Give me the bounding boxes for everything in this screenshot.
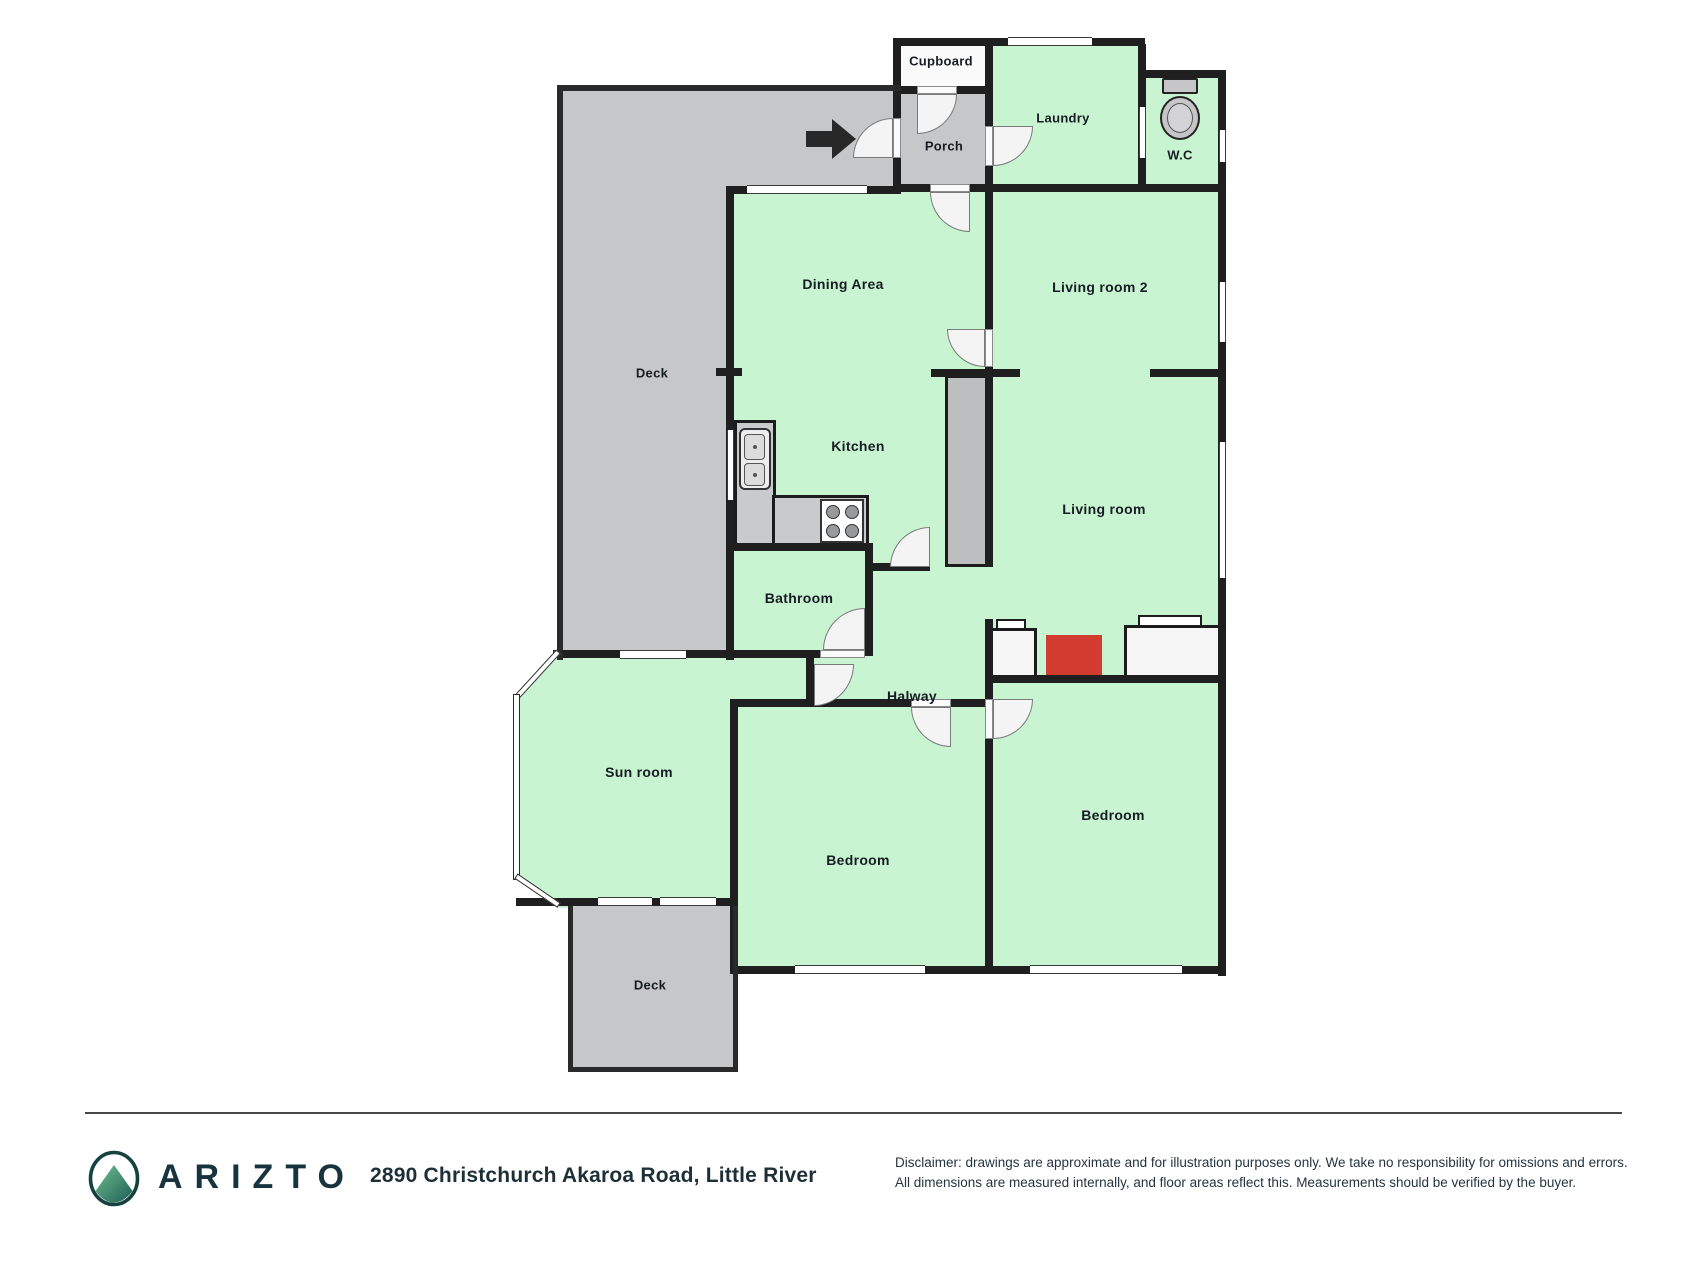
door-leaf — [820, 650, 865, 658]
wall — [726, 186, 734, 660]
window — [1139, 107, 1146, 158]
fireplace-cabinet-right-step — [1138, 615, 1202, 627]
door-leaf — [985, 126, 993, 166]
window — [1219, 130, 1226, 162]
room-label-cupboard: Cupboard — [909, 54, 973, 69]
wall — [970, 184, 1222, 192]
wall — [985, 365, 993, 567]
fireplace-cabinet-left — [988, 628, 1037, 679]
room-label-laundry: Laundry — [1036, 111, 1089, 126]
disclaimer-line-1: Disclaimer: drawings are approximate and… — [895, 1155, 1628, 1170]
room-label-living-room-2: Living room 2 — [1052, 279, 1148, 295]
property-address: 2890 Christchurch Akaroa Road, Little Ri… — [370, 1164, 817, 1188]
footer-divider — [85, 1112, 1622, 1114]
wall — [985, 38, 993, 126]
door-leaf — [930, 184, 970, 192]
door-leaf — [917, 86, 957, 94]
wall — [865, 543, 873, 656]
room-label-halway: Halway — [887, 688, 937, 704]
arizto-logo-icon — [88, 1150, 140, 1207]
window — [1030, 965, 1182, 974]
sink-basin-bottom — [744, 463, 765, 486]
disclaimer-text: Disclaimer: drawings are approximate and… — [895, 1153, 1650, 1192]
fireplace-cabinet-right — [1124, 625, 1222, 679]
window — [727, 430, 734, 500]
entrance-arrow-icon — [806, 131, 832, 147]
wall — [726, 543, 869, 551]
window — [620, 650, 686, 659]
window — [598, 897, 652, 906]
deck-wall — [568, 904, 573, 1072]
wall — [985, 739, 993, 974]
wall — [985, 619, 993, 679]
deck-wall — [557, 85, 563, 660]
room-label-deck-bottom: Deck — [634, 978, 666, 993]
room-label-kitchen: Kitchen — [831, 438, 884, 454]
stove-icon — [820, 499, 864, 543]
fireplace — [1046, 635, 1102, 679]
toilet-icon-bowl-inner — [1167, 103, 1193, 133]
wall — [893, 184, 930, 192]
fireplace-cabinet-left-step — [996, 619, 1026, 630]
wall — [1150, 369, 1226, 377]
chimney — [945, 375, 989, 567]
sink-icon — [739, 428, 771, 490]
window — [795, 965, 925, 974]
toilet-icon-tank — [1162, 78, 1198, 94]
room-halway-b — [734, 656, 989, 705]
room-label-bathroom: Bathroom — [765, 590, 834, 606]
window — [1219, 282, 1226, 342]
door-leaf — [893, 118, 901, 158]
entrance-arrow-icon-head — [832, 119, 856, 159]
door-leaf — [985, 699, 993, 739]
room-living-rooms — [989, 190, 1222, 679]
bay-window-wall — [513, 694, 520, 880]
window — [1219, 442, 1226, 578]
wall — [985, 675, 1222, 683]
room-sun-room — [516, 652, 738, 908]
window — [660, 897, 716, 906]
sink-basin-top — [744, 434, 765, 460]
wall — [931, 369, 1020, 377]
brand-name: ARIZTO — [158, 1158, 356, 1197]
wall — [716, 368, 742, 376]
deck-wall — [733, 904, 738, 1072]
room-label-wc: W.C — [1167, 148, 1192, 163]
deck-wall — [557, 85, 901, 91]
room-label-porch: Porch — [925, 139, 963, 154]
room-label-deck-top: Deck — [636, 366, 668, 381]
room-label-living-room: Living room — [1062, 501, 1145, 517]
window — [1008, 37, 1092, 46]
door-leaf — [985, 329, 993, 367]
room-label-bedroom-middle: Bedroom — [826, 852, 890, 868]
room-label-sun-room: Sun room — [605, 764, 673, 780]
floorplan-page: Cupboard Porch Laundry W.C Deck Dining A… — [0, 0, 1707, 1280]
room-label-dining: Dining Area — [802, 276, 883, 292]
window — [747, 185, 867, 194]
disclaimer-line-2: All dimensions are measured internally, … — [895, 1175, 1576, 1190]
room-deck-top-column — [560, 190, 734, 660]
wall — [1138, 70, 1226, 78]
deck-wall — [568, 1067, 738, 1072]
wall — [553, 650, 820, 658]
wall — [951, 699, 989, 707]
room-label-bedroom-right: Bedroom — [1081, 807, 1145, 823]
